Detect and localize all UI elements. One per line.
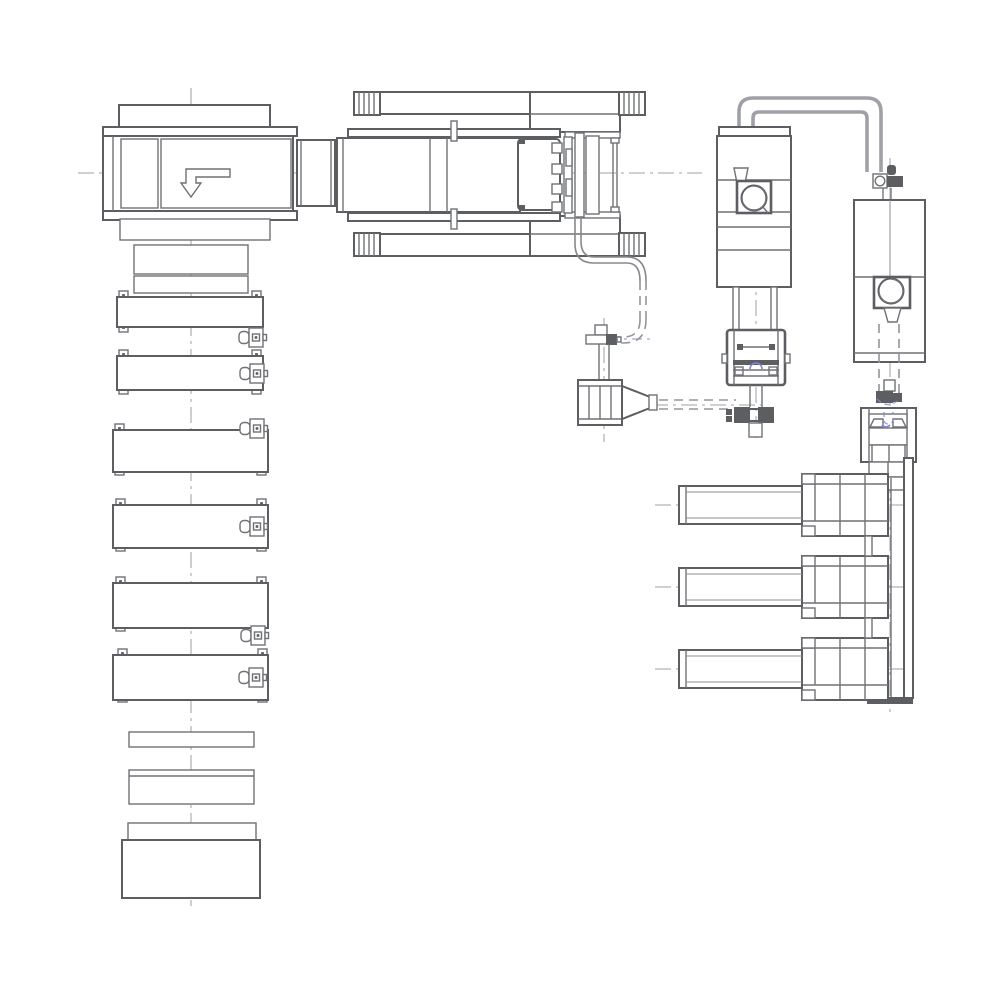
pusher-cylinder-1: [679, 474, 888, 536]
nozzle: [649, 395, 657, 410]
lower-fitting: [876, 380, 902, 405]
die-fitting: [726, 407, 774, 437]
moving-platen: [586, 136, 599, 214]
discharge-cone: [622, 386, 650, 419]
hatch-block: [619, 233, 645, 256]
conveyor-station-2: [117, 350, 268, 394]
drive-motor: [240, 517, 268, 536]
extruder-tower: [717, 127, 791, 437]
conveyor-station-1: [117, 291, 267, 347]
hatch-block: [354, 92, 380, 115]
machinery-drawing: Machinery arrangement engineering drawin…: [0, 0, 1000, 1000]
coupling-block: [297, 140, 335, 206]
tie-rod: [611, 138, 619, 143]
drive-motor: [240, 364, 268, 383]
conveyor-station-4: [113, 499, 268, 551]
conveyor-station-6: [113, 649, 268, 702]
pusher-cylinder-bank: [679, 458, 913, 704]
platen-plate: [575, 133, 584, 217]
drawing-canvas: Machinery arrangement engineering drawin…: [0, 0, 1000, 1000]
clamp-head: [727, 330, 785, 385]
frame-rail-top: [380, 92, 530, 114]
drive-motor: [239, 328, 267, 347]
pusher-cylinder-3: [679, 638, 888, 700]
drive-motor: [241, 626, 269, 645]
press-body: [337, 138, 520, 212]
head-connector: [865, 618, 872, 638]
granulator-tower: [854, 200, 925, 490]
conveyor-station-3: [113, 419, 268, 475]
hatch-block: [619, 92, 645, 115]
clamp-tick: [451, 121, 457, 141]
elbow-fitting: [873, 165, 903, 200]
machine-1-infeed-unit: [103, 105, 335, 220]
conveyor-station-5: [113, 577, 269, 645]
drive-motor: [239, 668, 267, 687]
hatch-block: [354, 233, 380, 256]
press-unit: [337, 92, 645, 256]
drive-motor: [240, 419, 268, 438]
head-connector: [865, 536, 872, 556]
transfer-stand: [120, 219, 270, 293]
hopper-feeder: [578, 325, 736, 425]
clamp-tick: [451, 209, 457, 229]
frame-rail-bottom: [380, 234, 530, 256]
pusher-cylinder-2: [679, 556, 888, 618]
